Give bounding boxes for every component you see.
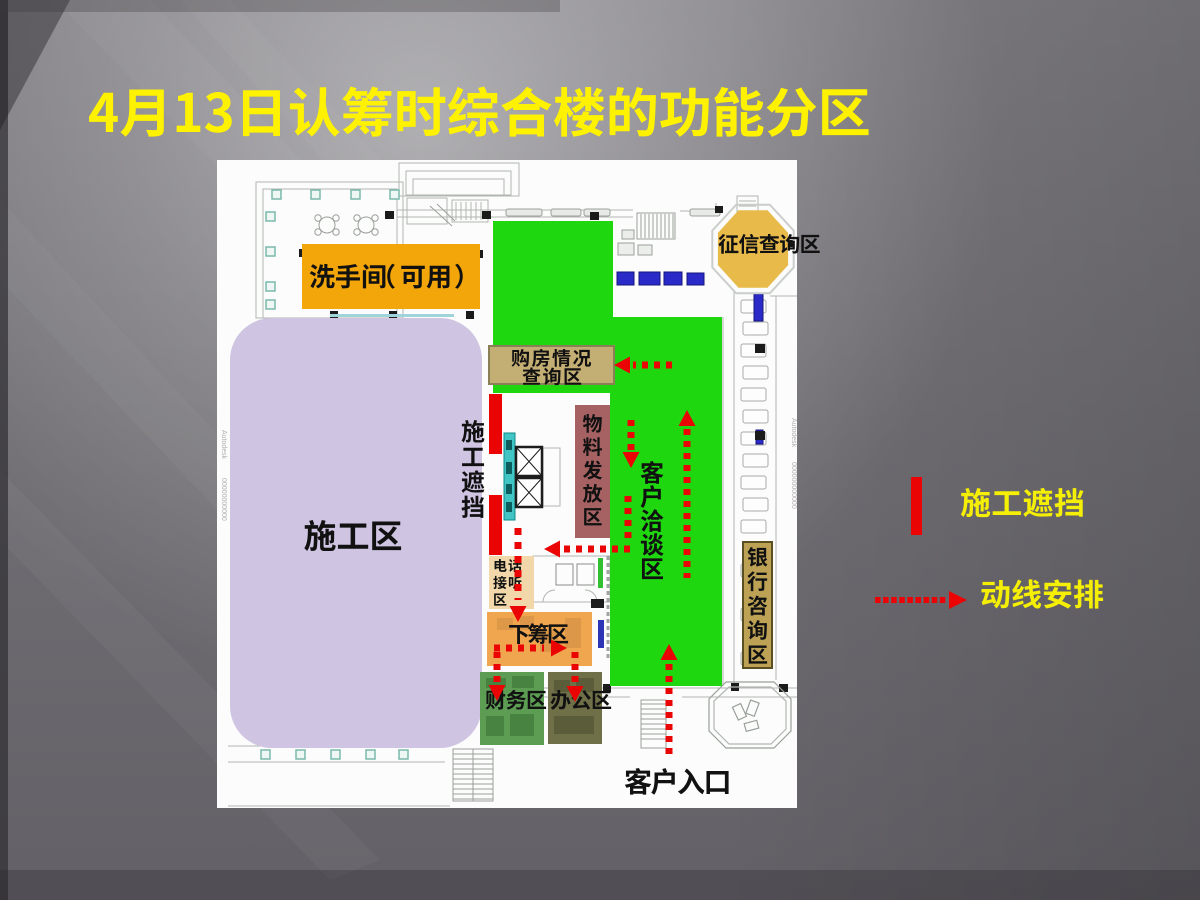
svg-text:000000000000: 000000000000 <box>790 462 797 509</box>
svg-text:Autodesk: Autodesk <box>790 418 797 448</box>
svg-text:00000000000: 00000000000 <box>220 478 227 521</box>
svg-text:Autodesk: Autodesk <box>220 430 227 460</box>
